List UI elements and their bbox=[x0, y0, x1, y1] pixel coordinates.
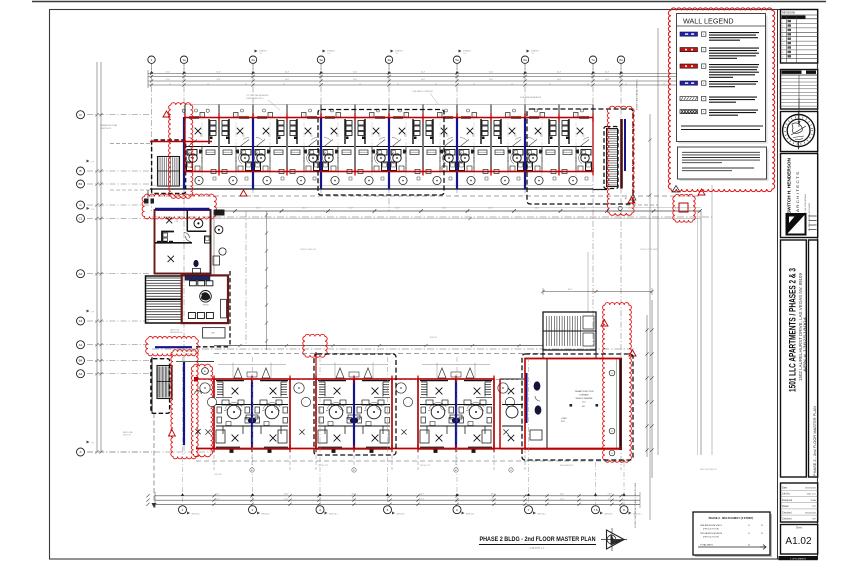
svg-text:201: 201 bbox=[200, 136, 203, 138]
svg-text:(PER 2nd FLOOR): (PER 2nd FLOOR) bbox=[703, 537, 719, 539]
svg-text:201: 201 bbox=[404, 136, 407, 138]
svg-text:A: A bbox=[79, 450, 81, 454]
svg-text:201: 201 bbox=[582, 136, 585, 138]
svg-text:REVISIONS: REVISIONS bbox=[782, 12, 795, 15]
svg-text:201: 201 bbox=[514, 136, 517, 138]
svg-text:24'-8": 24'-8" bbox=[535, 208, 540, 210]
svg-text:12'-4": 12'-4" bbox=[489, 72, 494, 74]
svg-text:4: 4 bbox=[782, 35, 783, 37]
svg-text:A1: A1 bbox=[79, 343, 83, 347]
svg-text:TCP: TCP bbox=[812, 506, 817, 508]
svg-text:201: 201 bbox=[446, 136, 449, 138]
svg-text:1 OF 40 SHEETS: 1 OF 40 SHEETS bbox=[790, 558, 806, 560]
svg-text:12'-4": 12'-4" bbox=[560, 498, 564, 500]
svg-text:A1: A1 bbox=[204, 370, 206, 373]
svg-text:TYP: TYP bbox=[531, 53, 534, 55]
svg-text:24'-0": 24'-0" bbox=[215, 494, 220, 496]
svg-text:B01: B01 bbox=[582, 406, 585, 408]
svg-text:NORTH LANE DRB ALT PHASE 3: NORTH LANE DRB ALT PHASE 3 bbox=[636, 79, 639, 110]
svg-text:TYP: TYP bbox=[91, 312, 94, 314]
svg-text:7: 7 bbox=[782, 48, 783, 50]
svg-text:12'-4": 12'-4" bbox=[557, 72, 562, 74]
svg-text:201: 201 bbox=[336, 136, 339, 138]
svg-text:TEL 702.555.0111 FAX 702.555.: TEL 702.555.0111 FAX 702.555.0112 bbox=[808, 203, 811, 231]
svg-text:24'-8": 24'-8" bbox=[395, 208, 400, 210]
svg-text:2217: 2217 bbox=[582, 402, 586, 404]
svg-text:1501 LLC: 1501 LLC bbox=[807, 494, 817, 496]
svg-text:#4 PER CURB SEE ALT PHASE 3 -: #4 PER CURB SEE ALT PHASE 3 - 2ND FLOORS bbox=[634, 482, 637, 528]
svg-text:A3: A3 bbox=[455, 469, 457, 472]
svg-text:Designed: Designed bbox=[782, 499, 793, 502]
svg-text:24'-8": 24'-8" bbox=[285, 79, 289, 81]
svg-text:ONE BEDROOM UNITS: ONE BEDROOM UNITS bbox=[700, 525, 722, 527]
svg-text:3a: 3a bbox=[319, 58, 323, 62]
svg-text:24'-8": 24'-8" bbox=[442, 208, 447, 210]
svg-text:OPEN COURTYARD: OPEN COURTYARD bbox=[640, 248, 658, 251]
svg-text:201: 201 bbox=[310, 136, 313, 138]
svg-text:TYP: TYP bbox=[91, 162, 94, 164]
svg-text:TOTAL UNITS: TOTAL UNITS bbox=[700, 544, 713, 547]
svg-text:8a: 8a bbox=[619, 58, 623, 62]
svg-text:201: 201 bbox=[472, 136, 475, 138]
svg-text:2-HR AREA SEPARATION: 2-HR AREA SEPARATION bbox=[520, 96, 542, 99]
svg-text:24'-8": 24'-8" bbox=[349, 208, 354, 210]
svg-text:4a: 4a bbox=[387, 58, 391, 62]
svg-text:TYP: TYP bbox=[259, 53, 262, 55]
svg-text:201: 201 bbox=[268, 136, 271, 138]
svg-text:6a: 6a bbox=[523, 58, 527, 62]
svg-text:A R C H I T E C T S: A R C H I T E C T S bbox=[796, 172, 800, 212]
svg-text:A3: A3 bbox=[79, 319, 83, 323]
svg-text:TWO BEDROOM UNITS: TWO BEDROOM UNITS bbox=[700, 533, 723, 535]
svg-text:24'-0": 24'-0" bbox=[352, 494, 357, 496]
svg-text:24'-0": 24'-0" bbox=[284, 494, 289, 496]
svg-text:24'-0": 24'-0" bbox=[608, 494, 613, 496]
svg-text:PHASE 2 - 2nd FLOOR MASTER PLA: PHASE 2 - 2nd FLOOR MASTER PLAN bbox=[813, 405, 817, 476]
svg-text:24'-8": 24'-8" bbox=[353, 79, 357, 81]
svg-text:B120: B120 bbox=[561, 421, 565, 423]
svg-text:TYP: TYP bbox=[463, 53, 466, 55]
svg-text:TENANT FUNCTION: TENANT FUNCTION bbox=[575, 390, 594, 393]
svg-text:Date: Date bbox=[782, 487, 788, 490]
svg-text:7.5: 7.5 bbox=[593, 508, 598, 512]
svg-text:PHASE 2 - MULTI-FAMILY (4 STOR: PHASE 2 - MULTI-FAMILY (4 STORY) bbox=[709, 516, 754, 520]
svg-text:APN # 1362S18004: APN # 1362S18004 bbox=[802, 316, 807, 372]
svg-text:3: 3 bbox=[782, 30, 783, 32]
svg-text:A3: A3 bbox=[251, 469, 253, 472]
svg-text:PATIO DECK BELOW: PATIO DECK BELOW bbox=[700, 468, 717, 471]
svg-text:TYP: TYP bbox=[91, 209, 94, 211]
svg-text:24'-8": 24'-8" bbox=[302, 208, 307, 210]
svg-text:SINGLE THEATRE: SINGLE THEATRE bbox=[575, 397, 593, 400]
svg-text:SWITCH H. HENDERSON: SWITCH H. HENDERSON bbox=[787, 157, 792, 214]
svg-text:12'-4": 12'-4" bbox=[353, 72, 358, 74]
svg-text:24'-8": 24'-8" bbox=[166, 79, 170, 81]
svg-text:24'-0": 24'-0" bbox=[560, 494, 565, 496]
svg-text:B4: B4 bbox=[79, 359, 83, 363]
svg-text:TYP: TYP bbox=[395, 53, 398, 55]
svg-text:TYP: TYP bbox=[327, 53, 330, 55]
svg-text:201: 201 bbox=[242, 136, 245, 138]
svg-text:12'-4": 12'-4" bbox=[491, 498, 495, 500]
svg-text:12'-4": 12'-4" bbox=[352, 498, 356, 500]
svg-text:24'-8": 24'-8" bbox=[216, 79, 220, 81]
svg-text:5a: 5a bbox=[455, 58, 459, 62]
svg-text:12'-4": 12'-4" bbox=[420, 498, 424, 500]
svg-text:1-HR RATED CORRIDOR: 1-HR RATED CORRIDOR bbox=[412, 90, 434, 93]
svg-text:Job No.: Job No. bbox=[782, 493, 791, 496]
svg-text:24'-8": 24'-8" bbox=[674, 208, 679, 210]
svg-text:NUMBER KEY PLAN: NUMBER KEY PLAN bbox=[100, 124, 118, 127]
svg-text:12'-4": 12'-4" bbox=[421, 72, 426, 74]
svg-text:LOBBY: LOBBY bbox=[561, 418, 568, 420]
svg-text:B08: B08 bbox=[211, 333, 214, 335]
svg-text:WHH: WHH bbox=[811, 500, 817, 502]
svg-text:LITERARY: LITERARY bbox=[579, 394, 589, 397]
svg-text:05/25/2020: 05/25/2020 bbox=[805, 488, 817, 490]
svg-text:101: 101 bbox=[176, 221, 179, 223]
svg-text:2ND FLOOR: 2ND FLOOR bbox=[170, 329, 180, 331]
svg-text:2ND FLOOR BRK: 2ND FLOOR BRK bbox=[185, 351, 199, 353]
svg-text:24'-8": 24'-8" bbox=[489, 79, 493, 81]
svg-text:7a: 7a bbox=[591, 58, 595, 62]
svg-text:Drawn: Drawn bbox=[782, 505, 790, 508]
svg-text:OFFICE: OFFICE bbox=[202, 305, 209, 307]
svg-text:24'-8": 24'-8" bbox=[628, 208, 633, 210]
svg-text:BRIDGE: BRIDGE bbox=[430, 337, 438, 339]
svg-text:TYP: TYP bbox=[91, 443, 94, 445]
svg-text:F: F bbox=[625, 197, 627, 201]
svg-text:201: 201 bbox=[378, 136, 381, 138]
svg-text:24'-8": 24'-8" bbox=[488, 208, 493, 210]
svg-text:12'-4": 12'-4" bbox=[608, 498, 612, 500]
svg-text:12'-4": 12'-4" bbox=[285, 72, 290, 74]
svg-text:12'-4": 12'-4" bbox=[215, 498, 219, 500]
svg-text:12'-4": 12'-4" bbox=[166, 72, 171, 74]
svg-text:C2: C2 bbox=[510, 470, 512, 472]
svg-text:C1: C1 bbox=[79, 217, 83, 221]
svg-text:TCP: TCP bbox=[812, 519, 817, 521]
svg-text:A2: A2 bbox=[79, 272, 83, 276]
svg-text:A1.02: A1.02 bbox=[785, 536, 812, 547]
svg-text:B1: B1 bbox=[79, 182, 83, 186]
svg-text:1501 LLC APARTMENTS / PHASES 2: 1501 LLC APARTMENTS / PHASES 2 & 3 bbox=[788, 268, 798, 392]
svg-text:24'-0": 24'-0" bbox=[420, 494, 425, 496]
svg-text:24'-8": 24'-8" bbox=[581, 208, 586, 210]
svg-text:24'-8": 24'-8" bbox=[557, 79, 561, 81]
svg-text:A4: A4 bbox=[79, 372, 83, 376]
svg-text:12'-4": 12'-4" bbox=[216, 72, 221, 74]
svg-text:TYP UNIT SEE ENLARGED: TYP UNIT SEE ENLARGED bbox=[246, 94, 269, 97]
svg-text:PLANS SHEET A2.01: PLANS SHEET A2.01 bbox=[246, 97, 263, 100]
svg-text:40'-0": 40'-0" bbox=[568, 289, 573, 291]
svg-text:9: 9 bbox=[782, 57, 783, 59]
svg-text:2-BR UNIT: 2-BR UNIT bbox=[214, 474, 222, 476]
svg-text:B: B bbox=[79, 169, 81, 173]
svg-text:UNIT B-2 TYP: UNIT B-2 TYP bbox=[318, 465, 328, 467]
svg-text:OPEN TO BELOW: OPEN TO BELOW bbox=[300, 249, 316, 251]
svg-text:(PER 2nd FLOOR): (PER 2nd FLOOR) bbox=[703, 529, 719, 531]
svg-text:24'-8": 24'-8" bbox=[421, 79, 425, 81]
svg-text:12'-4": 12'-4" bbox=[605, 72, 610, 74]
svg-text:Checked: Checked bbox=[782, 511, 792, 514]
svg-text:24'-0": 24'-0" bbox=[491, 494, 496, 496]
svg-text:UNIT B-2 TYP: UNIT B-2 TYP bbox=[420, 465, 430, 467]
svg-text:2a: 2a bbox=[251, 58, 255, 62]
svg-text:Checked: Checked bbox=[782, 518, 792, 521]
svg-text:SHEET A1-20: SHEET A1-20 bbox=[100, 127, 111, 130]
svg-text:201: 201 bbox=[540, 136, 543, 138]
svg-text:scale 1/16" = 1': scale 1/16" = 1' bbox=[530, 548, 545, 550]
svg-text:12'-4": 12'-4" bbox=[284, 498, 288, 500]
svg-text:1a: 1a bbox=[182, 58, 186, 62]
svg-text:B1: B1 bbox=[353, 470, 355, 472]
svg-text:WALL LEGEND: WALL LEGEND bbox=[683, 17, 734, 26]
svg-text:1: 1 bbox=[782, 21, 783, 23]
svg-text:5: 5 bbox=[782, 39, 783, 41]
svg-text:24'-8": 24'-8" bbox=[605, 79, 609, 81]
svg-text:PHASE 2 BLDG - 2nd FLOOR MAST: PHASE 2 BLDG - 2nd FLOOR MASTER PLAN bbox=[480, 536, 596, 543]
svg-text:2: 2 bbox=[782, 26, 783, 28]
svg-text:6: 6 bbox=[782, 43, 783, 45]
svg-text:24'-8": 24'-8" bbox=[256, 208, 261, 210]
svg-text:Sheet: Sheet bbox=[796, 527, 803, 530]
svg-text:BRIDGE BELOW: BRIDGE BELOW bbox=[170, 332, 183, 334]
svg-text:05/25/2020: 05/25/2020 bbox=[805, 512, 817, 514]
svg-text:8: 8 bbox=[782, 52, 783, 54]
